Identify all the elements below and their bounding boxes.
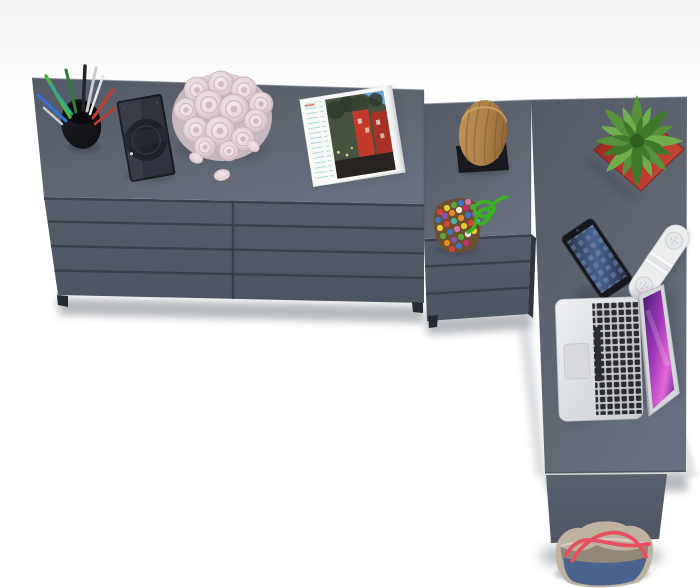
plant-center [630,134,644,148]
scene-canvas [0,0,700,588]
laptop-trackpad [564,343,590,379]
tote-bag [554,521,653,587]
product-photo [0,0,700,588]
pedestal-foot [428,315,438,328]
magazine [300,85,406,186]
laptop [555,284,685,425]
dresser-foot [412,302,423,313]
